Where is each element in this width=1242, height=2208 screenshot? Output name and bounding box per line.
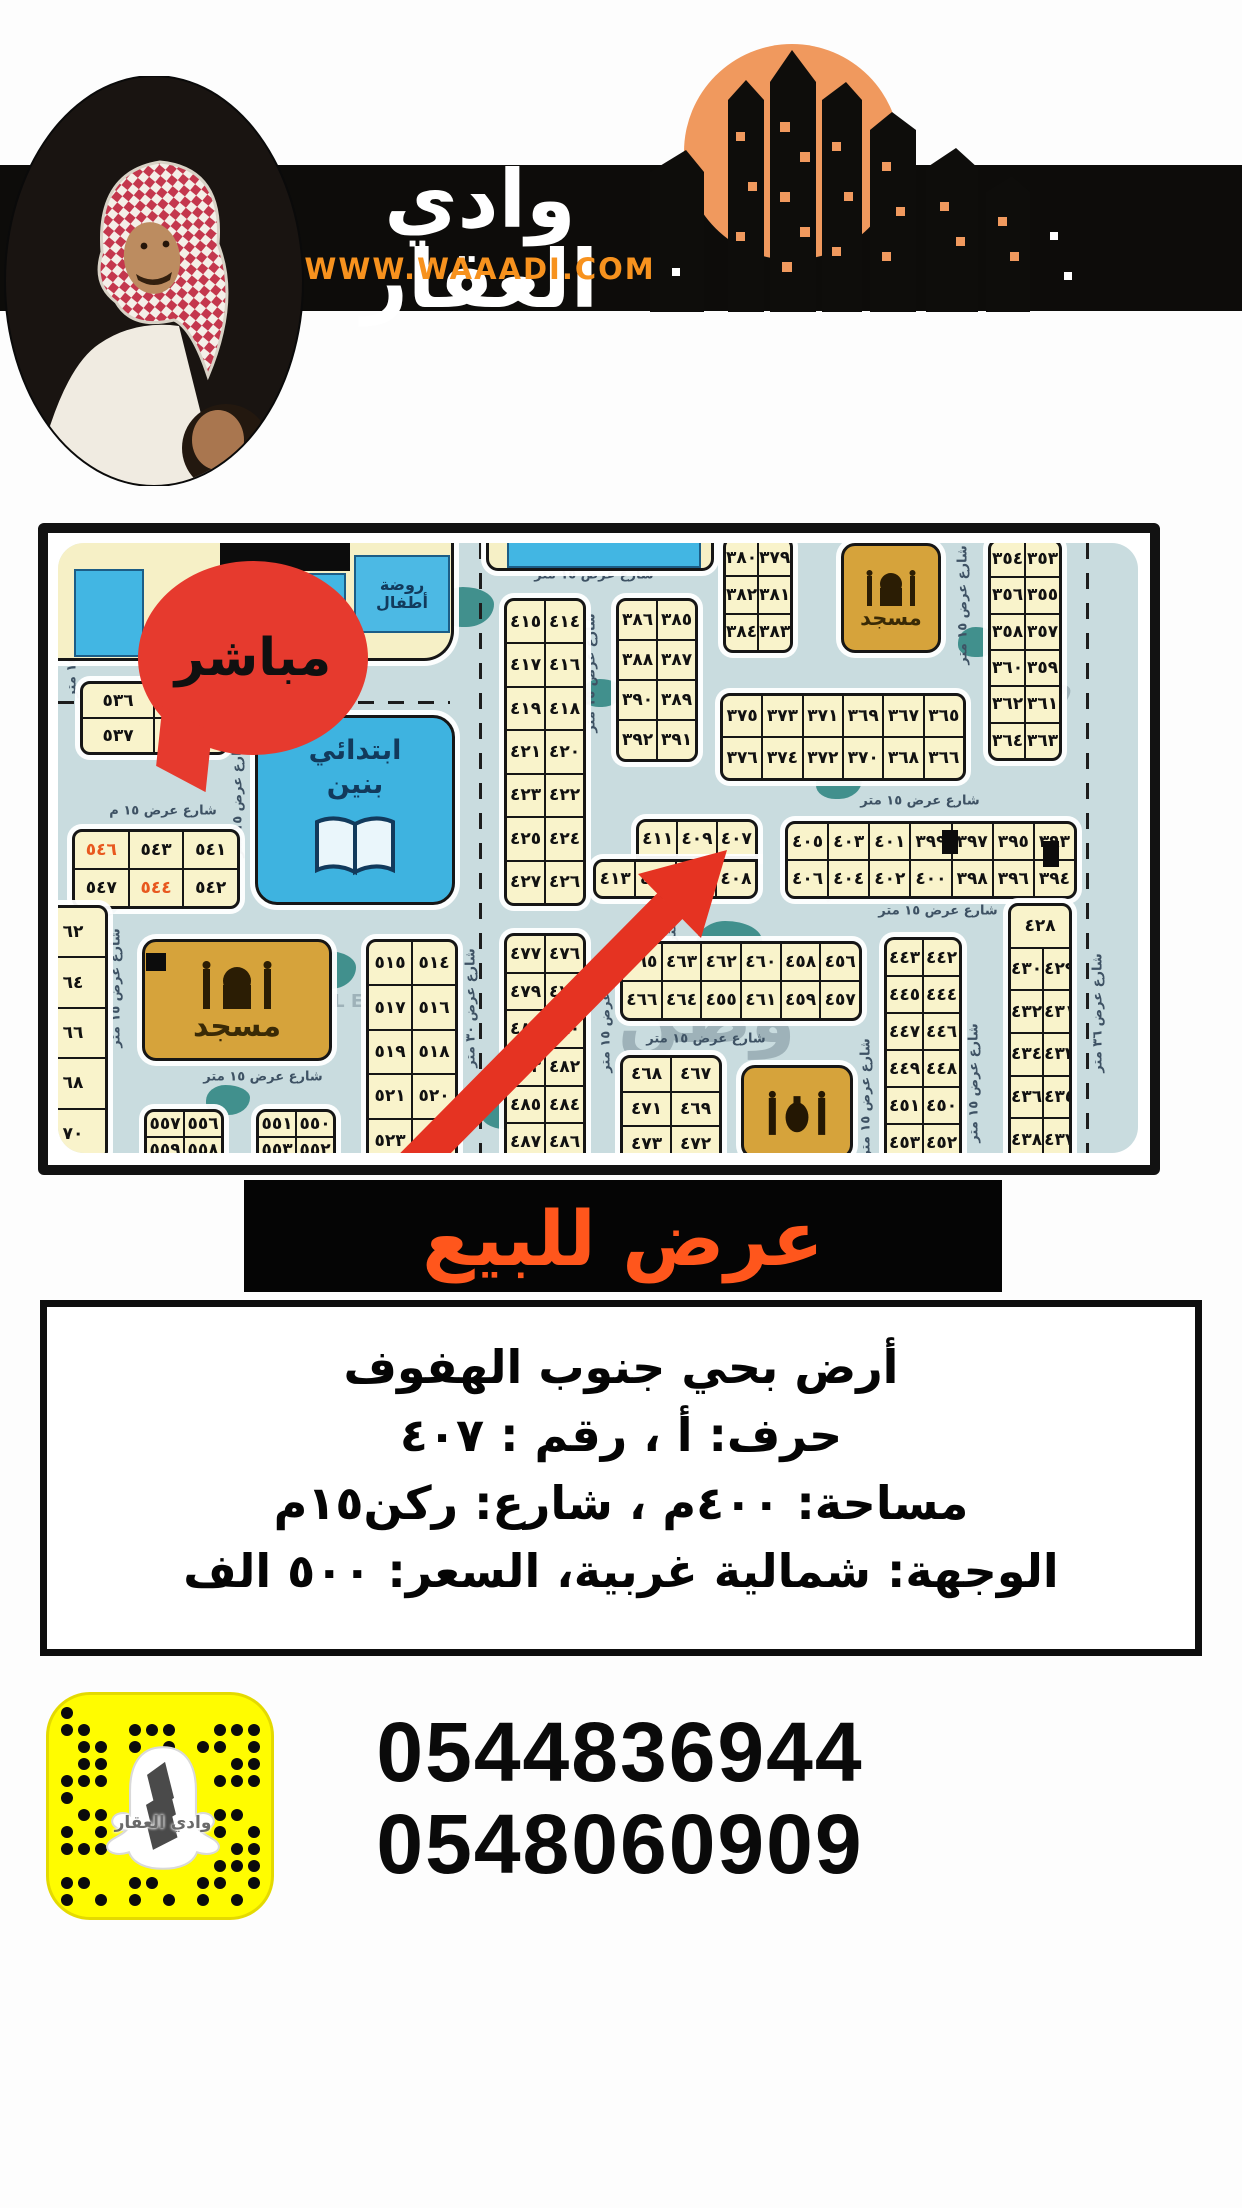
snapcode-dot bbox=[197, 1877, 209, 1889]
street-label: شارع عرض ١٥ متر bbox=[878, 904, 997, 919]
plot-cell: ٣٨١ bbox=[757, 577, 790, 612]
plot-cell: ٤٦٨ bbox=[623, 1058, 670, 1091]
plot-cell: ٤٨٠ bbox=[544, 1011, 583, 1047]
plot-cell: ٤٣١ bbox=[1042, 991, 1072, 1032]
plot-cell: ٣٨٥ bbox=[656, 601, 695, 639]
contact-phones: 0544836944 0548060909 bbox=[250, 1706, 990, 1890]
street-label: شارع عرض ١٥ متر bbox=[956, 545, 971, 664]
snapcode-dot bbox=[61, 1707, 73, 1719]
plot-cell: ٤٤٥ bbox=[887, 977, 922, 1012]
plot-cell: ٣٧٩ bbox=[757, 543, 790, 575]
snapcode-dot bbox=[61, 1775, 73, 1787]
plot-cell: ٤٨٣ bbox=[507, 1049, 544, 1085]
plot-block: ٥٥٧٥٥٦٥٥٩٥٥٨ bbox=[144, 1109, 224, 1153]
plot-cell: ٣٧٦ bbox=[723, 738, 761, 778]
plot-cell: ٤٦١ bbox=[740, 982, 780, 1018]
plot-cell: ٤١٣ bbox=[596, 862, 634, 896]
plot-block: ٥١٥٥١٤٥١٧٥١٦٥١٩٥١٨٥٢١٥٢٠٥٢٣٥٢٢ bbox=[366, 939, 458, 1153]
plot-cell: ٤٢٦ bbox=[544, 862, 583, 903]
plot-cell: ٣٥٧ bbox=[1024, 615, 1059, 649]
plot-cell: ٥٣٧ bbox=[83, 719, 153, 752]
snapcode-dot bbox=[146, 1877, 158, 1889]
plot-cell: ٤٧٩ bbox=[507, 974, 544, 1010]
listing-details-box: أرض بحي جنوب الهفوف حرف: أ ، رقم : ٤٠٧ م… bbox=[40, 1300, 1202, 1656]
plot-cell: ٤٥٣ bbox=[887, 1125, 922, 1153]
plot-cell: ٤٠٧ bbox=[716, 822, 755, 856]
plot-cell: ٥٢٢ bbox=[411, 1120, 455, 1153]
plot-cell: ٤٤٨ bbox=[922, 1051, 959, 1086]
map-marker bbox=[1043, 841, 1059, 867]
avatar bbox=[4, 76, 304, 486]
plot-cell: ٣٦٥ bbox=[923, 696, 963, 736]
plot-cell: ٤١٧ bbox=[507, 644, 544, 685]
plot-cell: ٣٥٦ bbox=[991, 578, 1024, 612]
plot-cell: ٤٢٢ bbox=[544, 775, 583, 816]
snapcode-dot bbox=[95, 1894, 107, 1906]
plot-cell: ٤٣٣ bbox=[1042, 1034, 1072, 1075]
plot-cell: ٤٢٠ bbox=[544, 731, 583, 772]
plot-block: ٦٢٦٤٦٦٦٨٧٠ bbox=[58, 905, 108, 1153]
snapcode-dot bbox=[78, 1724, 90, 1736]
street-label: شارع عرض ١٥ متر bbox=[967, 1023, 982, 1142]
plot-cell: ٤٢٨ bbox=[1011, 906, 1069, 947]
kindergarten-block: روضة أطفال bbox=[354, 555, 450, 633]
plot-cell: ٥٢٣ bbox=[369, 1120, 411, 1153]
snapcode-dot bbox=[129, 1724, 141, 1736]
plot-block: ٤١٣٤١٢٤٠٨ bbox=[593, 859, 758, 899]
listing-area-street: مساحة: ٤٠٠م ، شارع: ركن١٥م bbox=[47, 1469, 1195, 1537]
mosque-label: مسجد bbox=[193, 1009, 281, 1044]
map-marker bbox=[146, 953, 166, 971]
avatar-photo-illustration bbox=[4, 76, 304, 486]
plot-cell: ٤٥٩ bbox=[780, 982, 820, 1018]
plot-cell: ٥٤٦ bbox=[75, 832, 128, 868]
plot-cell: ٣٩٨ bbox=[951, 861, 992, 896]
ad-poster: وادي العقار WWW.WAAADI.COM bbox=[0, 0, 1242, 2208]
plot-cell: ٣٦٣ bbox=[1024, 724, 1059, 758]
mosque-icon bbox=[863, 566, 919, 606]
plot-cell: ٣٧٢ bbox=[802, 738, 842, 778]
plot-cell: ٥٥٣ bbox=[259, 1138, 295, 1153]
mosque-block: مسجد bbox=[841, 543, 941, 653]
plot-cell: ٣٥٥ bbox=[1024, 578, 1059, 612]
snapcode-dot bbox=[78, 1877, 90, 1889]
plot-cell: ٤٤٩ bbox=[887, 1051, 922, 1086]
snapcode-dot bbox=[163, 1724, 175, 1736]
plot-cell: ٣٦٦ bbox=[923, 738, 963, 778]
plot-cell: ٥٤٤ bbox=[128, 870, 183, 906]
plot-cell: ٤٧٨ bbox=[544, 974, 583, 1010]
plot-cell: ٥١٤ bbox=[411, 942, 455, 984]
plot-cell: ٦٤ bbox=[58, 958, 105, 1006]
plot-cell: ٤١٤ bbox=[544, 601, 583, 642]
plot-block: ٥٤٦٥٤٣٥٤١٥٤٧٥٤٤٥٤٢ bbox=[72, 829, 240, 909]
street-label: شارع عرض ١٥ متر bbox=[860, 794, 979, 809]
plot-cell: ٤٣٧ bbox=[1042, 1119, 1072, 1153]
plot-cell: ٤٥٦ bbox=[819, 944, 859, 980]
yard-court bbox=[507, 543, 701, 568]
snapcode-dot bbox=[214, 1877, 226, 1889]
plot-block: ٣٨٠٣٧٩٣٨٢٣٨١٣٨٤٣٨٣ bbox=[723, 543, 793, 653]
plot-cell: ٤٦٢ bbox=[700, 944, 740, 980]
listing-facing-price: الوجهة: شمالية غربية، السعر: ٥٠٠ الف bbox=[47, 1537, 1195, 1605]
plot-cell: ٤٢٣ bbox=[507, 775, 544, 816]
road-dashed-line bbox=[479, 543, 482, 1153]
snapcode-dot bbox=[197, 1894, 209, 1906]
plot-cell: ٤٦٦ bbox=[623, 982, 661, 1018]
listing-location: أرض بحي جنوب الهفوف bbox=[47, 1333, 1195, 1401]
plot-cell: ٤٨٤ bbox=[544, 1087, 583, 1123]
plot-cell: ٤٥٥ bbox=[700, 982, 740, 1018]
plot-cell: ٤١١ bbox=[639, 822, 676, 856]
snapcode-dot bbox=[61, 1724, 73, 1736]
plot-cell: ٤٠٢ bbox=[868, 861, 909, 896]
street-label: شارع عرض ٣٠ متر bbox=[464, 948, 479, 1067]
brand-title: وادي العقار bbox=[290, 160, 670, 320]
plot-cell: ٥١٩ bbox=[369, 1031, 411, 1073]
snapcode-dot bbox=[61, 1877, 73, 1889]
plot-block: ٤٦٨٤٦٧٤٧١٤٦٩٤٧٣٤٧٢ bbox=[620, 1055, 722, 1153]
snapchat-ghost-icon bbox=[88, 1741, 238, 1877]
snapcode-dot bbox=[129, 1894, 141, 1906]
snapcode: وادي العقار bbox=[46, 1692, 274, 1920]
plot-cell: ٣٨٤ bbox=[726, 615, 757, 650]
mosque-annex-block bbox=[741, 1065, 853, 1153]
plot-cell: ٤٠٤ bbox=[827, 861, 868, 896]
mosque-label: مسجد bbox=[860, 606, 922, 630]
street-label: شارع عرض ١٥ متر bbox=[109, 928, 124, 1047]
snapcode-dot bbox=[231, 1894, 243, 1906]
street-label: شارع عرض ١٥ متر bbox=[203, 1070, 322, 1085]
mosque-block: مسجد bbox=[142, 939, 332, 1061]
plot-cell: ٥٥٩ bbox=[147, 1138, 183, 1153]
plot-block: ٣٧٥٣٧٣٣٧١٣٦٩٣٦٧٣٦٥٣٧٦٣٧٤٣٧٢٣٧٠٣٦٨٣٦٦ bbox=[720, 693, 966, 781]
plot-block: ٤٦٥٤٦٣٤٦٢٤٦٠٤٥٨٤٥٦٤٦٦٤٦٤٤٥٥٤٦١٤٥٩٤٥٧ bbox=[620, 941, 862, 1021]
plot-cell: ٤٦٤ bbox=[661, 982, 701, 1018]
plot-cell: ٤٦٣ bbox=[661, 944, 701, 980]
plot-cell: ٥٥٦ bbox=[183, 1112, 221, 1136]
plot-cell: ٣٩٢ bbox=[619, 721, 656, 759]
plot-cell: ٤٤٢ bbox=[922, 940, 959, 975]
plot-block: ٤٧٧٤٧٦٤٧٩٤٧٨٤٨١٤٨٠٤٨٣٤٨٢٤٨٥٤٨٤٤٨٧٤٨٦ bbox=[504, 933, 586, 1153]
plot-cell: ٥١٥ bbox=[369, 942, 411, 984]
plot-cell: ٤٣٨ bbox=[1011, 1119, 1042, 1153]
plot-cell: ٤١٩ bbox=[507, 688, 544, 729]
plots-map-frame: وطن للعقاروطنREAL ESTATEوطن للعقارالعقار… bbox=[38, 523, 1160, 1175]
plot-cell: ٤٢٧ bbox=[507, 862, 544, 903]
snapcode-dot bbox=[146, 1724, 158, 1736]
plot-cell: ٣٨٢ bbox=[726, 577, 757, 612]
plot-cell: ٤٠٨ bbox=[715, 862, 755, 896]
plot-cell: ٤١٥ bbox=[507, 601, 544, 642]
plot-cell: ٤٨٥ bbox=[507, 1087, 544, 1123]
plot-cell: ٣٨٩ bbox=[656, 681, 695, 719]
snapcode-dot bbox=[214, 1724, 226, 1736]
plot-cell: ٣٨٠ bbox=[726, 543, 757, 575]
street-label: شارع عرض ١٥ متر bbox=[859, 1038, 874, 1153]
plot-cell: ٤٧٣ bbox=[623, 1127, 670, 1153]
plot-block: ٤٤٣٤٤٢٤٤٥٤٤٤٤٤٧٤٤٦٤٤٩٤٤٨٤٥١٤٥٠٤٥٣٤٥٢ bbox=[884, 937, 962, 1153]
bubble-label: مباشر bbox=[175, 628, 331, 688]
plot-cell: ٥٣٦ bbox=[83, 684, 153, 717]
plot-block: ٤٠٥٤٠٣٤٠١٣٩٩٣٩٧٣٩٥٣٩٣٤٠٦٤٠٤٤٠٢٤٠٠٣٩٨٣٩٦٣… bbox=[785, 821, 1077, 899]
open-book-icon bbox=[309, 812, 401, 886]
street-label: شارع عرض ١٥ م bbox=[109, 804, 216, 819]
plot-cell: ٤٥١ bbox=[887, 1088, 922, 1123]
plot-block: ٥٥١٥٥٠٥٥٣٥٥٢ bbox=[256, 1109, 336, 1153]
plot-cell: ٦٨ bbox=[58, 1059, 105, 1107]
plot-cell: ٤٧٦ bbox=[544, 936, 583, 972]
plot-cell: ٤٤٦ bbox=[922, 1014, 959, 1049]
yard-court bbox=[74, 569, 144, 657]
plot-cell: ٤٣٤ bbox=[1011, 1034, 1042, 1075]
plot-cell: ٤٨٧ bbox=[507, 1124, 544, 1153]
plot-cell: ٤٣٦ bbox=[1011, 1077, 1042, 1118]
plot-cell: ٤٤٣ bbox=[887, 940, 922, 975]
snapcode-dot bbox=[231, 1724, 243, 1736]
plot-cell: ٤٢٥ bbox=[507, 818, 544, 859]
street-label: شارع عرض ٣٦ متر bbox=[1091, 953, 1106, 1072]
plot-block: ٣٨٦٣٨٥٣٨٨٣٨٧٣٩٠٣٨٩٣٩٢٣٩١ bbox=[616, 598, 698, 762]
plot-cell: ٣٦٤ bbox=[991, 724, 1024, 758]
plot-cell: ٤٦٩ bbox=[670, 1093, 719, 1126]
plot-cell: ٣٥٩ bbox=[1024, 651, 1059, 685]
plot-cell: ٤٠٩ bbox=[676, 822, 715, 856]
snapcode-dot bbox=[61, 1843, 73, 1855]
top-block bbox=[486, 543, 714, 571]
brand-website-url: WWW.WAAADI.COM bbox=[290, 252, 670, 286]
plot-cell: ٤٨١ bbox=[507, 1011, 544, 1047]
plot-cell: ٥٢٠ bbox=[411, 1075, 455, 1117]
plot-cell: ٣٩١ bbox=[656, 721, 695, 759]
plot-cell: ٤٣٠ bbox=[1011, 949, 1042, 990]
snapcode-dot bbox=[61, 1792, 73, 1804]
plot-cell: ٥٤٣ bbox=[128, 832, 183, 868]
snapcode-dot bbox=[163, 1894, 175, 1906]
street-label: شارع عرض ١٥ متر bbox=[599, 953, 614, 1072]
plot-cell: ٤٥٢ bbox=[922, 1125, 959, 1153]
plot-cell: ٤٠١ bbox=[868, 824, 909, 859]
plot-cell: ٤١٢ bbox=[634, 862, 674, 896]
school-label: ابتدائي بنين bbox=[290, 734, 420, 802]
plot-cell: ٣٨٧ bbox=[656, 641, 695, 679]
plot-cell: ٥٥٧ bbox=[147, 1112, 183, 1136]
plot-cell: ٤٧٢ bbox=[670, 1127, 719, 1153]
plot-cell: ٣٧٥ bbox=[723, 696, 761, 736]
plot-cell: ٤٥٨ bbox=[780, 944, 820, 980]
plot-cell: ٥٥١ bbox=[259, 1112, 295, 1136]
mosque-icon bbox=[195, 957, 279, 1009]
for-sale-banner: عرض للبيع bbox=[244, 1180, 1002, 1292]
direct-sale-bubble: مباشر bbox=[138, 561, 368, 755]
map-marker bbox=[942, 830, 958, 854]
company-logo bbox=[620, 22, 1160, 312]
plot-block: ٣٥٤٣٥٣٣٥٦٣٥٥٣٥٨٣٥٧٣٦٠٣٥٩٣٦٢٣٦١٣٦٤٣٦٣ bbox=[988, 543, 1062, 761]
plot-cell: ٤٥٠ bbox=[922, 1088, 959, 1123]
plot-cell: ٤٣٢ bbox=[1011, 991, 1042, 1032]
snapcode-dot bbox=[129, 1877, 141, 1889]
plot-cell: ٤٤٧ bbox=[887, 1014, 922, 1049]
plot-cell: ٣٧٠ bbox=[842, 738, 882, 778]
plot-cell: ٣٦٨ bbox=[882, 738, 922, 778]
plot-cell: ٣٦١ bbox=[1024, 687, 1059, 721]
plot-cell: ٦٢ bbox=[58, 908, 105, 956]
plot-cell: ٣٦٩ bbox=[842, 696, 882, 736]
plot-cell: ٤٢٩ bbox=[1042, 949, 1072, 990]
plot-cell: ٤٢٤ bbox=[544, 818, 583, 859]
plot-cell: ٣٩٦ bbox=[992, 861, 1033, 896]
plot-cell: ٣٩٥ bbox=[992, 824, 1033, 859]
plot-cell bbox=[675, 862, 715, 896]
plot-cell: ٣٨٣ bbox=[757, 615, 790, 650]
plot-cell: ٦٦ bbox=[58, 1009, 105, 1057]
plot-cell: ٤٠٥ bbox=[788, 824, 827, 859]
listing-plot-number: حرف: أ ، رقم : ٤٠٧ bbox=[47, 1401, 1195, 1469]
snapcode-dot bbox=[61, 1894, 73, 1906]
plot-cell: ٣٦٠ bbox=[991, 651, 1024, 685]
plot-cell: ٤٧١ bbox=[623, 1093, 670, 1126]
snapcode-brand-label: وادي العقار bbox=[49, 1813, 277, 1833]
buildings-logo-icon bbox=[620, 22, 1160, 312]
plot-cell: ٤٢١ bbox=[507, 731, 544, 772]
plot-cell: ٤٦٠ bbox=[740, 944, 780, 980]
plot-block: ٤٢٨٤٣٠٤٢٩٤٣٢٤٣١٤٣٤٤٣٣٤٣٦٤٣٥٤٣٨٤٣٧ bbox=[1008, 903, 1072, 1153]
plot-cell: ٤٥٧ bbox=[819, 982, 859, 1018]
plot-cell: ٥١٨ bbox=[411, 1031, 455, 1073]
plot-cell: ٣٦٧ bbox=[882, 696, 922, 736]
plot-cell: ٥٥٨ bbox=[183, 1138, 221, 1153]
plot-cell: ٥١٧ bbox=[369, 986, 411, 1028]
plot-cell: ٥٤١ bbox=[182, 832, 237, 868]
plot-cell: ٣٩٠ bbox=[619, 681, 656, 719]
plot-cell: ٣٦٢ bbox=[991, 687, 1024, 721]
plot-cell: ٥٢١ bbox=[369, 1075, 411, 1117]
plot-cell: ٣٨٦ bbox=[619, 601, 656, 639]
plot-block: ٤١٥٤١٤٤١٧٤١٦٤١٩٤١٨٤٢١٤٢٠٤٢٣٤٢٢٤٢٥٤٢٤٤٢٧٤… bbox=[504, 598, 586, 906]
plot-cell: ٥١٦ bbox=[411, 986, 455, 1028]
phone-number-1: 0544836944 bbox=[250, 1706, 990, 1798]
phone-number-2: 0548060909 bbox=[250, 1798, 990, 1890]
plots-map: وطن للعقاروطنREAL ESTATEوطن للعقارالعقار… bbox=[58, 543, 1138, 1153]
plot-cell: ٤٠٠ bbox=[909, 861, 950, 896]
plot-cell: ٤٣٥ bbox=[1042, 1077, 1072, 1118]
plot-cell: ٤٨٢ bbox=[544, 1049, 583, 1085]
plot-cell: ٣٥٣ bbox=[1024, 543, 1059, 576]
plot-block: ٤١١٤٠٩٤٠٧ bbox=[636, 819, 758, 859]
plot-cell: ٤٨٦ bbox=[544, 1124, 583, 1153]
plot-cell: ٣٧٣ bbox=[761, 696, 801, 736]
street-label: شارع عرض ١٥ متر bbox=[646, 1032, 765, 1047]
plot-cell: ٥٥٢ bbox=[295, 1138, 333, 1153]
plot-cell: ٤٦٥ bbox=[623, 944, 661, 980]
plot-cell: ٣٧٤ bbox=[761, 738, 801, 778]
plot-cell: ٤٠٣ bbox=[827, 824, 868, 859]
banner-label: عرض للبيع bbox=[422, 1190, 823, 1283]
plot-cell: ٤٦٧ bbox=[670, 1058, 719, 1091]
plot-cell: ٧٠ bbox=[58, 1110, 105, 1153]
plot-cell: ٥٥٠ bbox=[295, 1112, 333, 1136]
plot-cell: ٤١٦ bbox=[544, 644, 583, 685]
plot-cell: ٤١٨ bbox=[544, 688, 583, 729]
plot-cell: ٣٥٤ bbox=[991, 543, 1024, 576]
plot-cell: ٤٠٦ bbox=[788, 861, 827, 896]
plot-cell: ٤٤٤ bbox=[922, 977, 959, 1012]
plot-cell: ٤٧٧ bbox=[507, 936, 544, 972]
minarets-icon bbox=[760, 1086, 834, 1138]
plot-cell: ٣٧١ bbox=[802, 696, 842, 736]
plot-cell: ٥٤٧ bbox=[75, 870, 128, 906]
plot-cell: ٣٨٨ bbox=[619, 641, 656, 679]
road-dashed-line bbox=[1086, 543, 1089, 1153]
plot-cell: ٣٥٨ bbox=[991, 615, 1024, 649]
plot-cell: ٥٤٢ bbox=[182, 870, 237, 906]
